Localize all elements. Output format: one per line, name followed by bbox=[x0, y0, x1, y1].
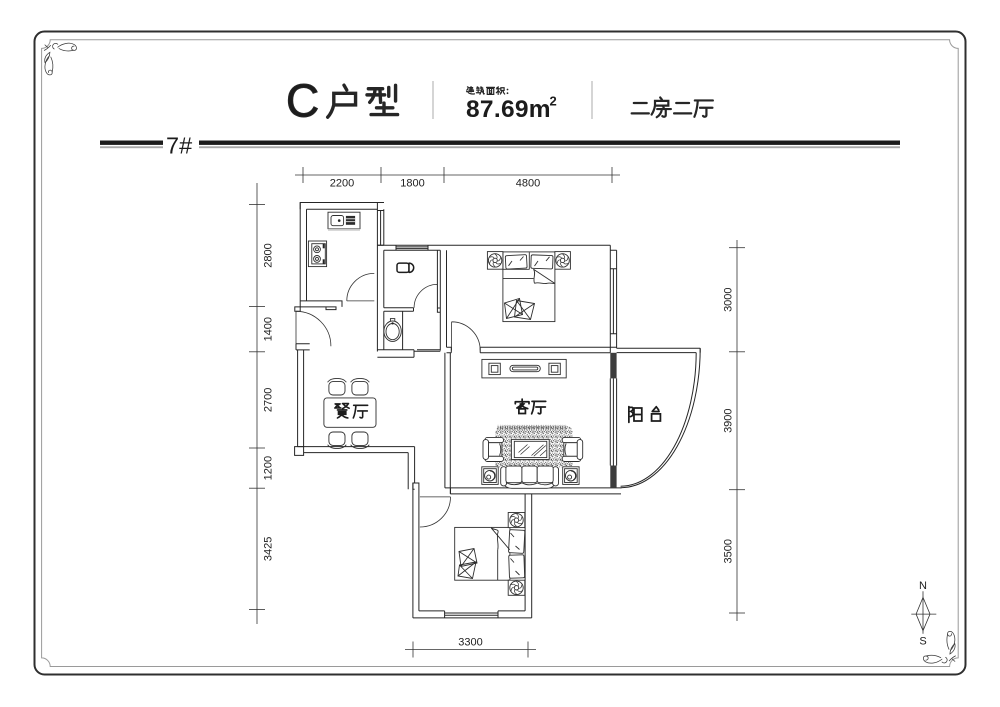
svg-text:3900: 3900 bbox=[723, 408, 735, 432]
svg-text:S: S bbox=[919, 636, 926, 648]
svg-text:2800: 2800 bbox=[263, 243, 275, 267]
svg-text:C: C bbox=[286, 75, 319, 127]
svg-text:87.69m: 87.69m bbox=[466, 96, 551, 123]
svg-text:4800: 4800 bbox=[516, 178, 540, 190]
svg-text:2700: 2700 bbox=[263, 388, 275, 412]
svg-text:2200: 2200 bbox=[330, 178, 354, 190]
svg-text:3500: 3500 bbox=[723, 539, 735, 563]
svg-text:3300: 3300 bbox=[458, 637, 482, 649]
svg-text:3000: 3000 bbox=[723, 287, 735, 311]
svg-text:1200: 1200 bbox=[263, 456, 275, 480]
svg-text:N: N bbox=[919, 580, 927, 592]
svg-text:2: 2 bbox=[550, 94, 557, 109]
svg-text:1800: 1800 bbox=[400, 178, 424, 190]
svg-text:7#: 7# bbox=[166, 133, 192, 159]
svg-text:1400: 1400 bbox=[263, 317, 275, 341]
svg-text:3425: 3425 bbox=[263, 537, 275, 561]
